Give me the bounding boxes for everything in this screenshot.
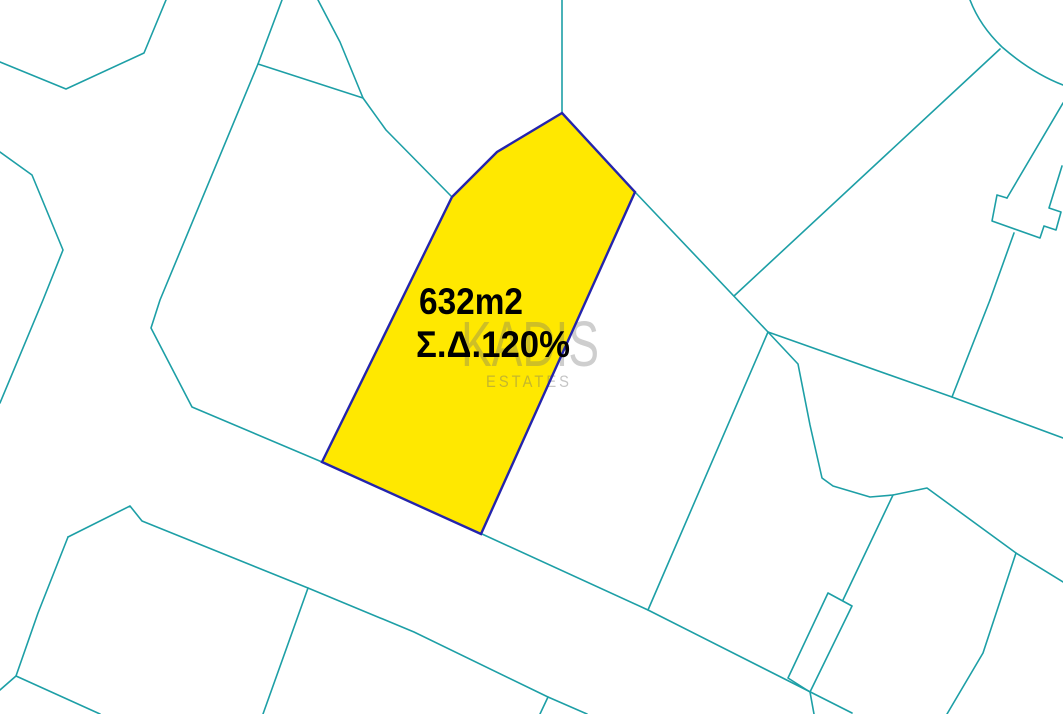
road-edge xyxy=(482,534,852,713)
boundary-line xyxy=(16,676,100,714)
boundary-line xyxy=(258,64,363,98)
boundary-line xyxy=(843,495,893,600)
boundary-line xyxy=(734,49,1000,296)
building-footprint xyxy=(992,166,1062,238)
map-canvas: KADIS ESTATES xyxy=(0,0,1063,714)
boundary-line xyxy=(1007,103,1063,198)
boundary-line xyxy=(318,0,452,197)
cadastral-map: KADIS ESTATES xyxy=(0,0,1063,714)
parcel-density-label: Σ.Δ.120% xyxy=(416,324,570,365)
watermark-subtitle: ESTATES xyxy=(486,372,572,391)
boundary-line xyxy=(635,192,768,332)
boundary-arc xyxy=(970,0,1063,85)
boundary-line xyxy=(540,697,548,714)
boundary-line xyxy=(768,332,1063,582)
boundary-line xyxy=(947,553,1016,714)
boundary-line xyxy=(0,0,166,89)
boundary-line xyxy=(0,152,63,403)
boundary-line xyxy=(0,537,68,690)
boundary-line xyxy=(810,692,814,714)
building-footprint xyxy=(788,593,852,692)
boundary-line xyxy=(648,332,768,610)
boundary-line xyxy=(768,332,1063,438)
boundary-line xyxy=(990,233,1014,300)
parcel-area-label: 632m2 xyxy=(419,281,523,322)
boundary-line xyxy=(952,300,990,397)
boundary-line xyxy=(151,0,322,462)
boundary-line xyxy=(263,588,308,714)
road-edge xyxy=(68,506,587,714)
